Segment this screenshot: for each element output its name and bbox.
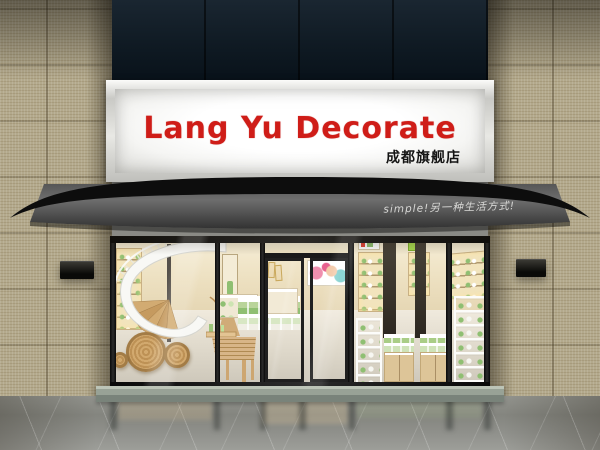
deer-table-top: [206, 332, 236, 337]
window-frame-top: [110, 236, 490, 243]
window-mullion: [260, 236, 265, 392]
interior-dark-column: [383, 236, 396, 338]
interior-dark-column: [415, 236, 426, 338]
shop-branch-text: 成都旗舰店: [386, 147, 461, 167]
shop-signboard: Lang Yu Decorate 成都旗舰店: [106, 80, 494, 182]
wood-log-disc: [126, 332, 166, 372]
deer-legs: [216, 360, 254, 382]
window-mullion: [215, 236, 220, 392]
storefront-window: [110, 236, 490, 392]
deer-table-product: [221, 325, 224, 332]
shop-name-text: Lang Yu Decorate: [115, 111, 485, 146]
signboard-lightbox: Lang Yu Decorate 成都旗舰店: [115, 89, 485, 173]
entrance-door-left: [265, 258, 304, 382]
upper-facade-panel: [112, 0, 488, 84]
window-mullion: [110, 236, 116, 392]
wall-sconce-left: [60, 261, 94, 279]
white-etagere-shelf: [356, 318, 382, 382]
wall-sconce-right: [516, 259, 546, 277]
wood-log-disc: [164, 342, 190, 368]
storefront-photo: Lang Yu Decorate 成都旗舰店 simple!另一种生活方式!: [0, 0, 600, 450]
window-mullion: [348, 236, 354, 392]
display-cabinet: [384, 334, 414, 382]
white-etagere-shelf: [454, 296, 488, 382]
threshold-step: [96, 386, 504, 402]
deer-table-product: [209, 324, 213, 332]
window-mullion: [446, 236, 452, 392]
floor-reflections: [0, 396, 600, 450]
window-mullion: [484, 236, 490, 392]
cabinet-base: [384, 352, 414, 382]
cabinet-product-stack: [384, 334, 414, 352]
entrance-door-right: [310, 258, 348, 382]
